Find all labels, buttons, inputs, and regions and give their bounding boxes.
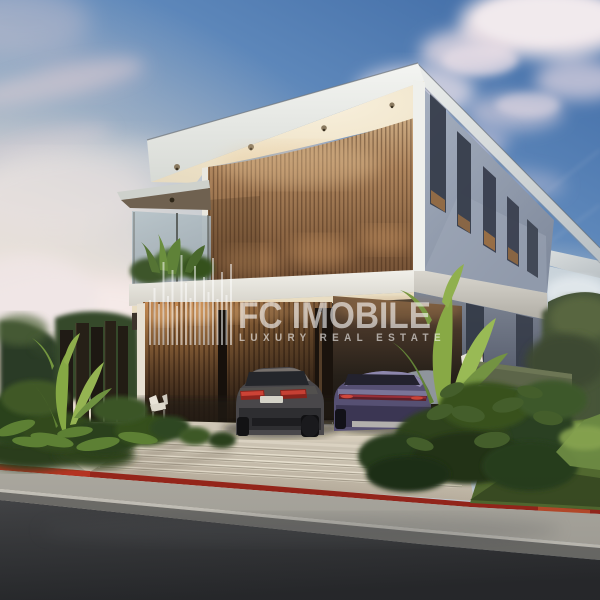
svg-text:LUXURY REAL ESTATE: LUXURY REAL ESTATE [239, 332, 446, 344]
svg-text:FC IMOBILE: FC IMOBILE [238, 295, 431, 336]
